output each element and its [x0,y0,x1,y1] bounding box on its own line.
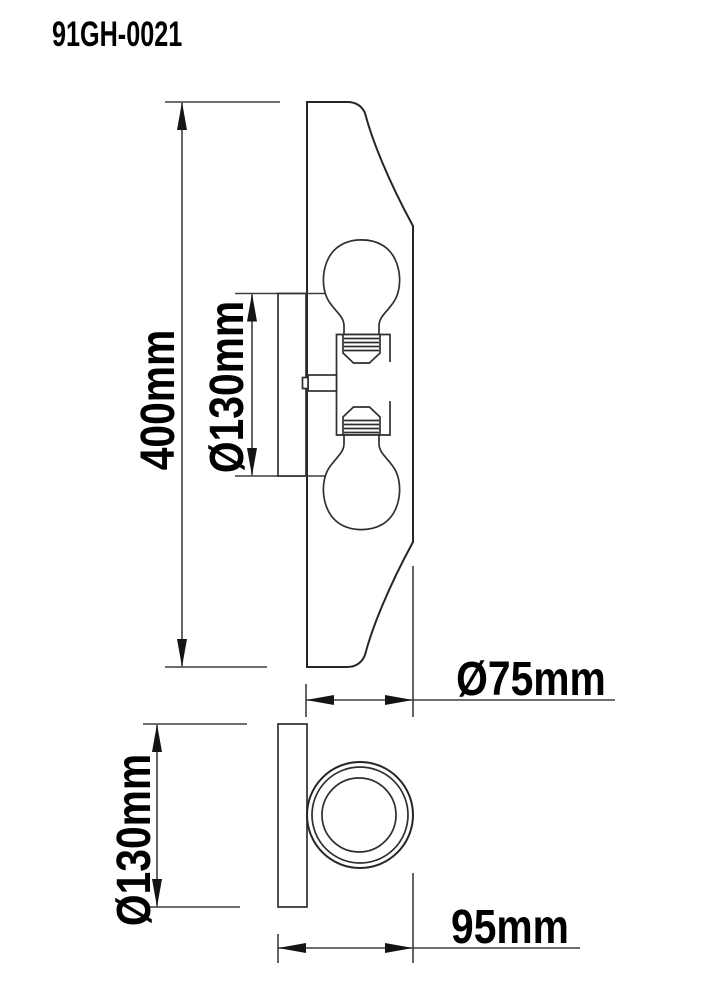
front-view: 400mm Ø130mm Ø75mm [132,102,615,717]
dimension-label-canopy-diameter: Ø130mm [201,301,254,473]
dimension-label-depth: 95mm [451,901,569,954]
dimension-depth: 95mm [278,873,580,963]
dimension-canopy-diameter: Ø130mm [201,294,257,477]
arrowhead-right-icon [385,695,413,705]
arrowhead-down-icon [177,639,187,667]
backplate-edge [278,724,307,907]
dimension-backplate-diameter: Ø130mm [108,724,247,926]
holder-rim-circle [312,767,408,863]
arrowhead-left-icon [278,943,306,953]
arrowhead-up-icon [177,102,187,130]
dimension-label-shade-diameter: Ø75mm [456,653,606,706]
mounting-tab-step [303,378,309,389]
holder-inner-circle [322,778,396,852]
arrowhead-right-icon [385,943,413,953]
mounting-tab [308,375,337,391]
product-code: 91GH-0021 [52,15,182,54]
dimension-label-length: 400mm [132,330,185,471]
technical-drawing-canvas: 91GH-0021 [0,0,707,1000]
side-view: Ø130mm 95mm [108,724,580,963]
dimension-label-backplate-diameter: Ø130mm [108,754,161,926]
drawing-page: 91GH-0021 [0,0,707,1000]
arrowhead-up-icon [152,724,162,752]
arrowhead-left-icon [306,695,334,705]
